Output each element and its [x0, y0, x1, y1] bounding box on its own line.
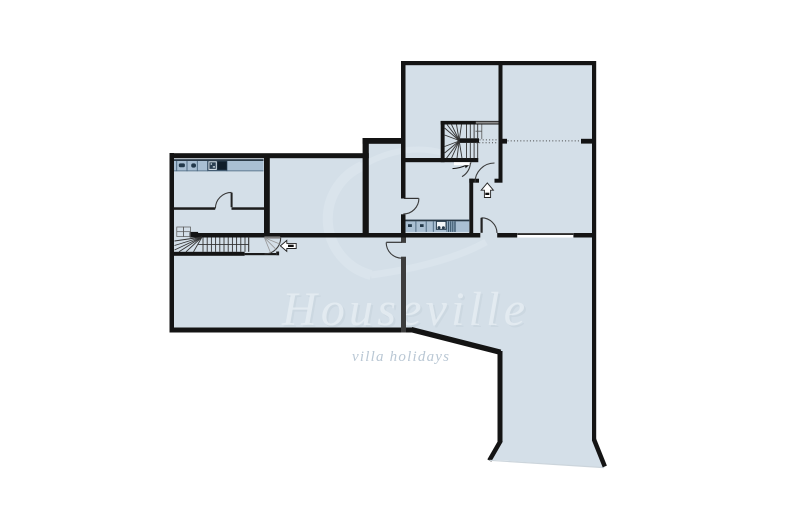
svg-text:villa holidays: villa holidays	[352, 349, 449, 365]
